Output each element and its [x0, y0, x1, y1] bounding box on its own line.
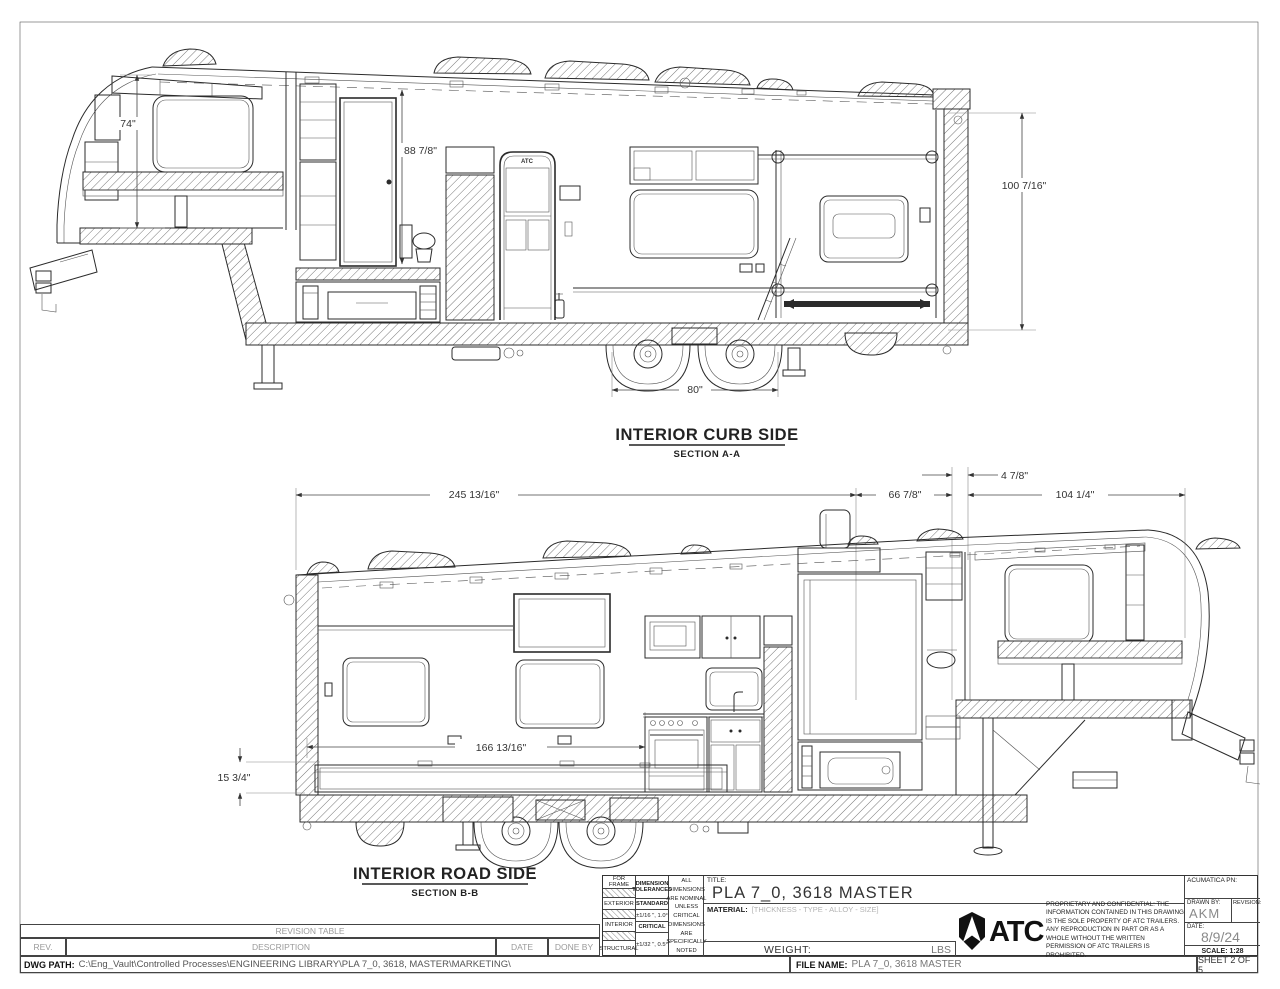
weight-label: WEIGHT:	[764, 944, 811, 956]
acumatica-cell: ACUMATICA PN:	[1185, 876, 1260, 899]
bedroom-curb	[83, 72, 296, 230]
drawing-canvas: 74" 88 7/8"	[0, 0, 1280, 989]
front-cap-curb	[57, 67, 152, 243]
pantry-upper	[764, 616, 792, 645]
dim-100-label: 100 7/16"	[1002, 180, 1047, 192]
rear-parapet	[933, 89, 970, 109]
bath-sink	[927, 650, 957, 668]
bedroom-window-road	[1005, 565, 1093, 643]
file-name-value: PLA 7_0, 3618 MASTER	[852, 959, 962, 970]
tol-row-frame: FOR FRAME	[603, 876, 635, 889]
bedroom-road	[975, 543, 1182, 700]
road-side-view: 245 13/16" 66 7/8" 104 1/4" 4 7/8"	[208, 467, 1260, 899]
scale-value: SCALE: 1:28	[1201, 948, 1243, 955]
overhead-cabinet-window	[630, 147, 758, 184]
kitchen-road	[643, 548, 970, 792]
tol-header: DIMENSION TOLERANCES	[636, 876, 668, 899]
kitchen-drawers	[709, 717, 762, 792]
closet-cabinet	[300, 162, 336, 260]
dim-74-label: 74"	[120, 118, 136, 130]
tol-critical-label: CRITICAL	[636, 922, 668, 933]
garage-ladder	[758, 238, 796, 320]
bath-floor	[296, 268, 440, 280]
outlet-6	[558, 736, 571, 744]
overhead-cabinet-road	[975, 543, 1145, 560]
weight-unit: LBS	[931, 944, 951, 956]
dwg-path-label: DWG PATH:	[24, 960, 75, 970]
tol-row-structural: STRUCTURAL	[603, 941, 635, 957]
sheet-cell: SHEET 2 OF 5	[1197, 956, 1258, 973]
road-window-2	[516, 660, 604, 728]
roof-ac-units-road	[307, 510, 1240, 574]
closet-shelves	[300, 84, 336, 160]
date-cell: DATE: 8/9/24	[1185, 923, 1260, 946]
light-switch	[565, 222, 572, 236]
axle-equalizer	[672, 328, 717, 344]
material-label: MATERIAL:	[707, 905, 748, 914]
date-value: 8/9/24	[1201, 929, 1240, 945]
bath-cabinet	[926, 552, 962, 600]
sheet-value: SHEET 2 OF 5	[1198, 955, 1257, 975]
date-col: DATE	[496, 938, 548, 956]
tol-row-exterior: EXTERIOR	[603, 898, 635, 910]
tv	[514, 594, 610, 652]
door-window	[506, 168, 549, 212]
atc-logo-text: ATC	[989, 916, 1044, 948]
description-col: DESCRIPTION	[66, 938, 496, 956]
outlet-1	[740, 264, 752, 272]
tolerance-table: FOR FRAME EXTERIOR INTERIOR STRUCTURAL D…	[603, 876, 704, 957]
bedroom-steps	[926, 716, 960, 739]
title-block: FOR FRAME EXTERIOR INTERIOR STRUCTURAL D…	[602, 875, 1258, 956]
living-window	[630, 190, 758, 258]
tol-note: ALL DIMENSIONS ARE NOMINAL UNLESS CRITIC…	[666, 877, 706, 955]
garage-curb	[573, 110, 938, 320]
rev-col: REV.	[20, 938, 66, 956]
raised-floor-curb	[80, 228, 252, 244]
entry-door	[500, 152, 555, 320]
revision-cell: REVISION:	[1232, 899, 1260, 923]
dwg-path-cell: DWG PATH: C:\Eng_Vault\Controlled Proces…	[20, 956, 790, 973]
dim-80-label: 80"	[687, 384, 703, 396]
curb-view-section: SECTION A-A	[674, 449, 741, 460]
tol-standard-value: ±1/16 ", 1.0°	[636, 910, 668, 922]
revision-table-title: REVISION TABLE	[275, 926, 344, 936]
curb-side-view: 74" 88 7/8"	[30, 49, 1052, 460]
title-label: TITLE:	[707, 877, 727, 884]
scale-cell: SCALE: 1:28	[1185, 946, 1260, 957]
rear-wall-curb	[944, 109, 968, 332]
awning-roller	[284, 595, 294, 605]
rear-bumper-lump	[356, 822, 404, 846]
dim-4-label: 4 7/8"	[1001, 470, 1028, 482]
drawn-by-cell: DRAWN BY: AKM	[1185, 899, 1232, 923]
proprietary-note: PROPRIETARY AND CONFIDENTIAL: THE INFORM…	[1046, 901, 1184, 961]
under-fridge-compartment	[798, 742, 922, 790]
microwave	[645, 616, 700, 658]
outlet-4	[325, 683, 332, 696]
drawing-sheet: 74" 88 7/8"	[0, 0, 1280, 989]
hitch-pin-box-curb	[30, 250, 97, 312]
closet-bath-curb	[296, 84, 440, 322]
tol-critical-value: ±1/32 ", 0.5°	[636, 933, 668, 957]
atc-logo-cell: ATC	[956, 904, 1046, 957]
tol-hatch-2	[603, 910, 635, 919]
over-door-cabinet	[446, 147, 494, 173]
landing-gear-curb	[254, 345, 805, 389]
road-view-title: INTERIOR ROAD SIDE	[353, 865, 537, 883]
tol-standard-label: STANDARD	[636, 899, 668, 910]
garage-road	[318, 594, 610, 744]
front-cabinet-road	[1126, 545, 1144, 640]
toilet	[400, 225, 435, 262]
pantry-wall-hatch	[764, 647, 792, 792]
garage-bed-rail	[784, 301, 930, 307]
front-cap-road	[1148, 530, 1209, 718]
atc-logo: ATC	[958, 911, 1044, 951]
faucet	[734, 692, 743, 712]
road-window-1	[343, 658, 429, 726]
range-oven	[645, 717, 707, 792]
file-name-label: FILE NAME:	[796, 960, 848, 970]
acumatica-label: ACUMATICA PN:	[1187, 877, 1237, 884]
bedroom-window	[153, 96, 253, 172]
entry-wall-hatch	[446, 175, 494, 320]
road-view-section: SECTION B-B	[411, 888, 478, 899]
landing-gear-road	[456, 718, 1040, 855]
main-frame-road	[300, 795, 1027, 822]
dim-104-label: 104 1/4"	[1056, 489, 1095, 501]
living-area-curb	[630, 147, 764, 272]
revision-table-columns: REV. DESCRIPTION DATE DONE BY	[20, 938, 600, 956]
outlet-2	[756, 264, 764, 272]
entry-area-curb: ATC	[446, 78, 690, 320]
window-grab-handle	[833, 214, 895, 238]
door-atc-logo: ATC	[521, 159, 534, 165]
drawing-title: PLA 7_0, 3618 MASTER	[712, 884, 914, 903]
fire-extinguisher	[555, 293, 564, 318]
dim-closet-height: 88 7/8"	[400, 90, 446, 264]
dim-245-label: 245 13/16"	[449, 489, 500, 501]
info-column: ACUMATICA PN: DRAWN BY: AKM REVISION: DA…	[1184, 876, 1259, 957]
cargo-tray	[315, 761, 727, 792]
drawn-by-value: AKM	[1189, 906, 1220, 921]
dim-66-label: 66 7/8"	[889, 489, 922, 501]
revision-table-header: REVISION TABLE	[20, 924, 600, 938]
dim-interior-span: 166 13/16"	[307, 712, 645, 758]
bed-support	[175, 196, 187, 227]
tall-vent-stack	[820, 510, 850, 548]
weight-cell: WEIGHT: LBS	[704, 941, 956, 957]
refrigerator	[798, 574, 922, 740]
dim-15-label: 15 3/4"	[218, 772, 251, 784]
dim-166-label: 166 13/16"	[476, 742, 527, 754]
bed-base-road	[998, 641, 1182, 658]
front-cabinet-lower	[85, 142, 118, 200]
material-value: [THICKNESS - TYPE - ALLOY - SIZE]	[752, 905, 879, 914]
outlet-3	[920, 208, 930, 222]
bed-support-road	[1062, 664, 1074, 700]
dwg-path-value: C:\Eng_Vault\Controlled Processes\ENGINE…	[79, 959, 511, 970]
thermostat	[560, 186, 580, 200]
bed-base	[83, 172, 283, 190]
dim-88-label: 88 7/8"	[404, 145, 437, 157]
dim-bedroom-height: 74"	[115, 75, 165, 228]
gooseneck-floor	[956, 700, 1190, 718]
road-shell	[284, 530, 1209, 822]
tol-row-interior: INTERIOR	[603, 919, 635, 932]
proprietary-cell: PROPRIETARY AND CONFIDENTIAL: THE INFORM…	[1046, 904, 1184, 957]
tol-hatch-1	[603, 889, 635, 898]
tol-hatch-3	[603, 932, 635, 941]
curb-view-title: INTERIOR CURB SIDE	[615, 426, 798, 444]
revision-label: REVISION:	[1233, 900, 1261, 906]
doneby-col: DONE BY	[548, 938, 600, 956]
